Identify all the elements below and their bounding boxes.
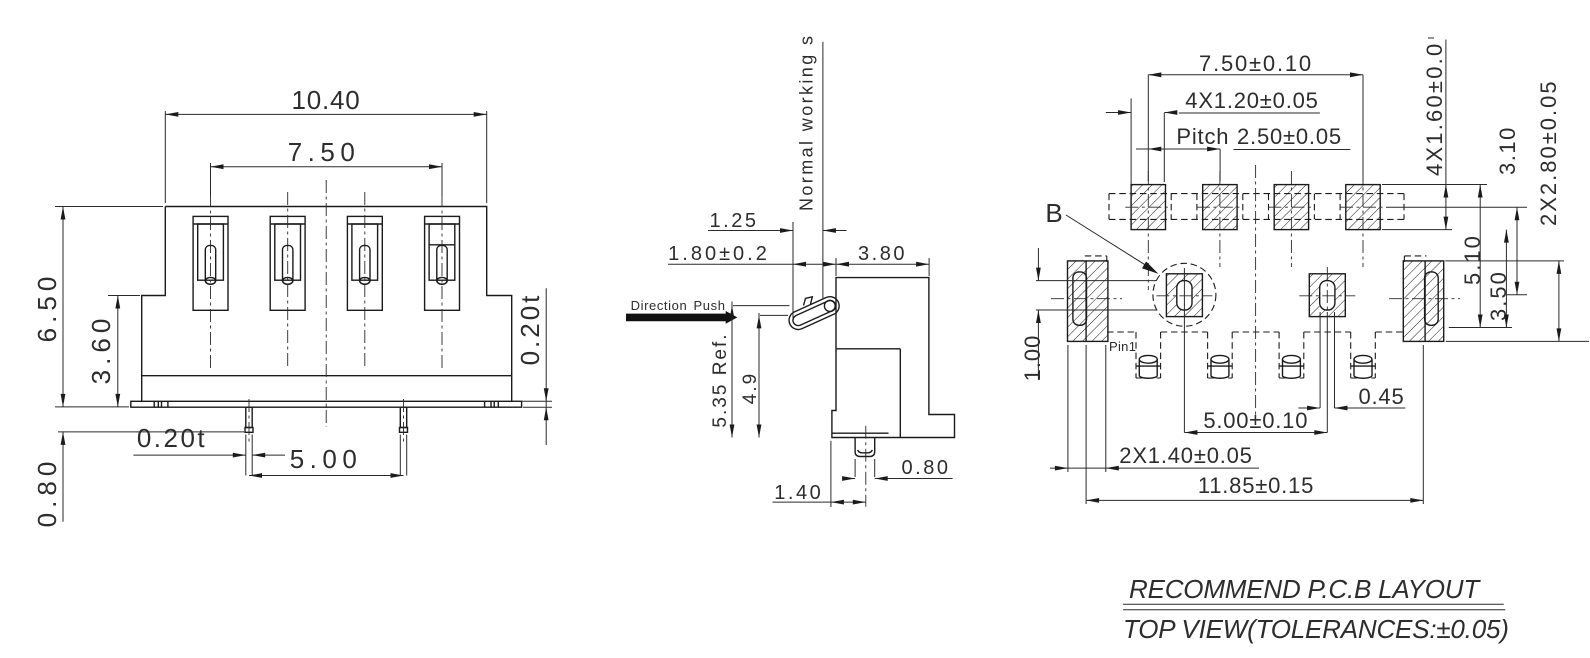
svg-text:RECOMMEND P.C.B LAYOUT: RECOMMEND P.C.B LAYOUT (1129, 574, 1481, 604)
svg-text:2X1.40±0.05: 2X1.40±0.05 (1119, 443, 1252, 468)
svg-text:3.10: 3.10 (1495, 126, 1520, 175)
svg-text:Normal working s: Normal working s (797, 34, 817, 211)
svg-text:5.00±0.10: 5.00±0.10 (1203, 408, 1308, 433)
svg-text:Direction: Direction (631, 298, 688, 313)
svg-text:1.25: 1.25 (710, 210, 759, 232)
svg-text:Push: Push (694, 298, 726, 313)
svg-text:5.35 Ref.: 5.35 Ref. (710, 332, 731, 427)
svg-text:3.50: 3.50 (1486, 270, 1511, 321)
svg-text:5.00: 5.00 (290, 444, 363, 474)
svg-text:7.50±0.10: 7.50±0.10 (1199, 51, 1313, 76)
svg-text:0.20t: 0.20t (515, 293, 545, 366)
svg-text:2.50±0.05: 2.50±0.05 (1237, 124, 1342, 149)
svg-text:0.20t: 0.20t (137, 423, 207, 453)
svg-text:Pin1: Pin1 (1109, 339, 1136, 354)
svg-text:5.10: 5.10 (1460, 234, 1485, 285)
svg-text:6.50: 6.50 (32, 272, 62, 343)
svg-text:1.00: 1.00 (1020, 335, 1045, 382)
svg-text:0.80: 0.80 (902, 457, 951, 479)
svg-text:4.9: 4.9 (740, 372, 761, 404)
svg-text:0.80: 0.80 (32, 457, 62, 528)
svg-text:1.80±0.2: 1.80±0.2 (668, 243, 770, 265)
svg-text:3.60: 3.60 (86, 314, 116, 385)
svg-text:11.85±0.15: 11.85±0.15 (1198, 473, 1314, 498)
svg-text:4X1.20±0.05: 4X1.20±0.05 (1185, 88, 1318, 113)
svg-text:0.45: 0.45 (1358, 384, 1404, 409)
svg-text:10.40: 10.40 (291, 85, 360, 115)
svg-text:Pitch: Pitch (1176, 124, 1229, 149)
svg-text:B: B (1045, 198, 1062, 228)
svg-text:1.40: 1.40 (774, 482, 823, 504)
svg-text:4X1.60±0.0: 4X1.60±0.0 (1422, 42, 1447, 176)
svg-text:3.80: 3.80 (858, 243, 907, 265)
svg-text:2X2.80±0.05: 2X2.80±0.05 (1536, 79, 1561, 226)
svg-text:TOP VIEW(TOLERANCES:±0.05): TOP VIEW(TOLERANCES:±0.05) (1123, 614, 1509, 644)
svg-text:7.50: 7.50 (288, 137, 361, 167)
